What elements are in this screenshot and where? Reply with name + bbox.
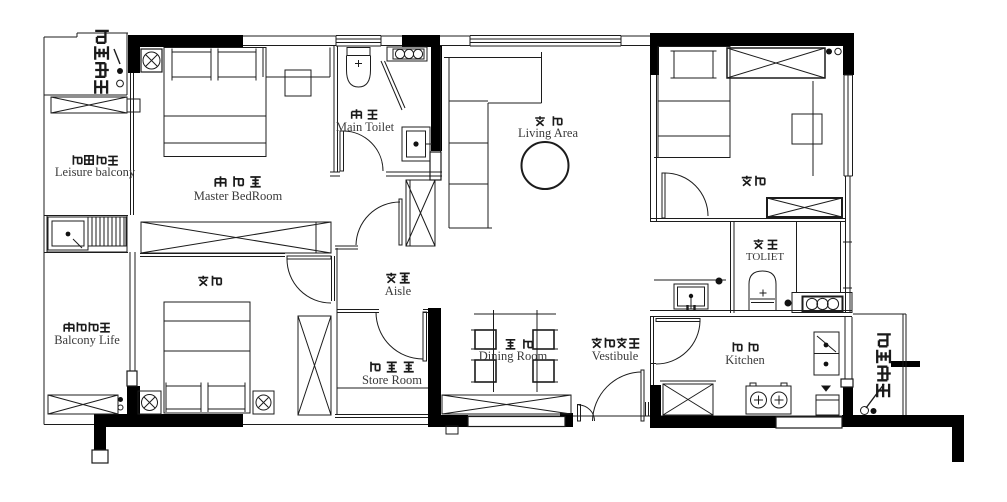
svg-text:TOLIET: TOLIET (746, 251, 785, 263)
svg-text:Store Room: Store Room (362, 373, 422, 387)
svg-text:Vestibule: Vestibule (592, 349, 639, 363)
svg-text:Master BedRoom: Master BedRoom (194, 189, 283, 203)
svg-text:Aisle: Aisle (385, 284, 412, 298)
svg-text:Main Toilet: Main Toilet (336, 120, 395, 134)
svg-text:Kitchen: Kitchen (725, 353, 765, 367)
svg-text:Living Area: Living Area (518, 126, 579, 140)
svg-text:Dining Room: Dining Room (479, 349, 548, 363)
svg-text:Leisure balcony: Leisure balcony (55, 165, 136, 179)
svg-text:Balcony Life: Balcony Life (54, 333, 120, 347)
